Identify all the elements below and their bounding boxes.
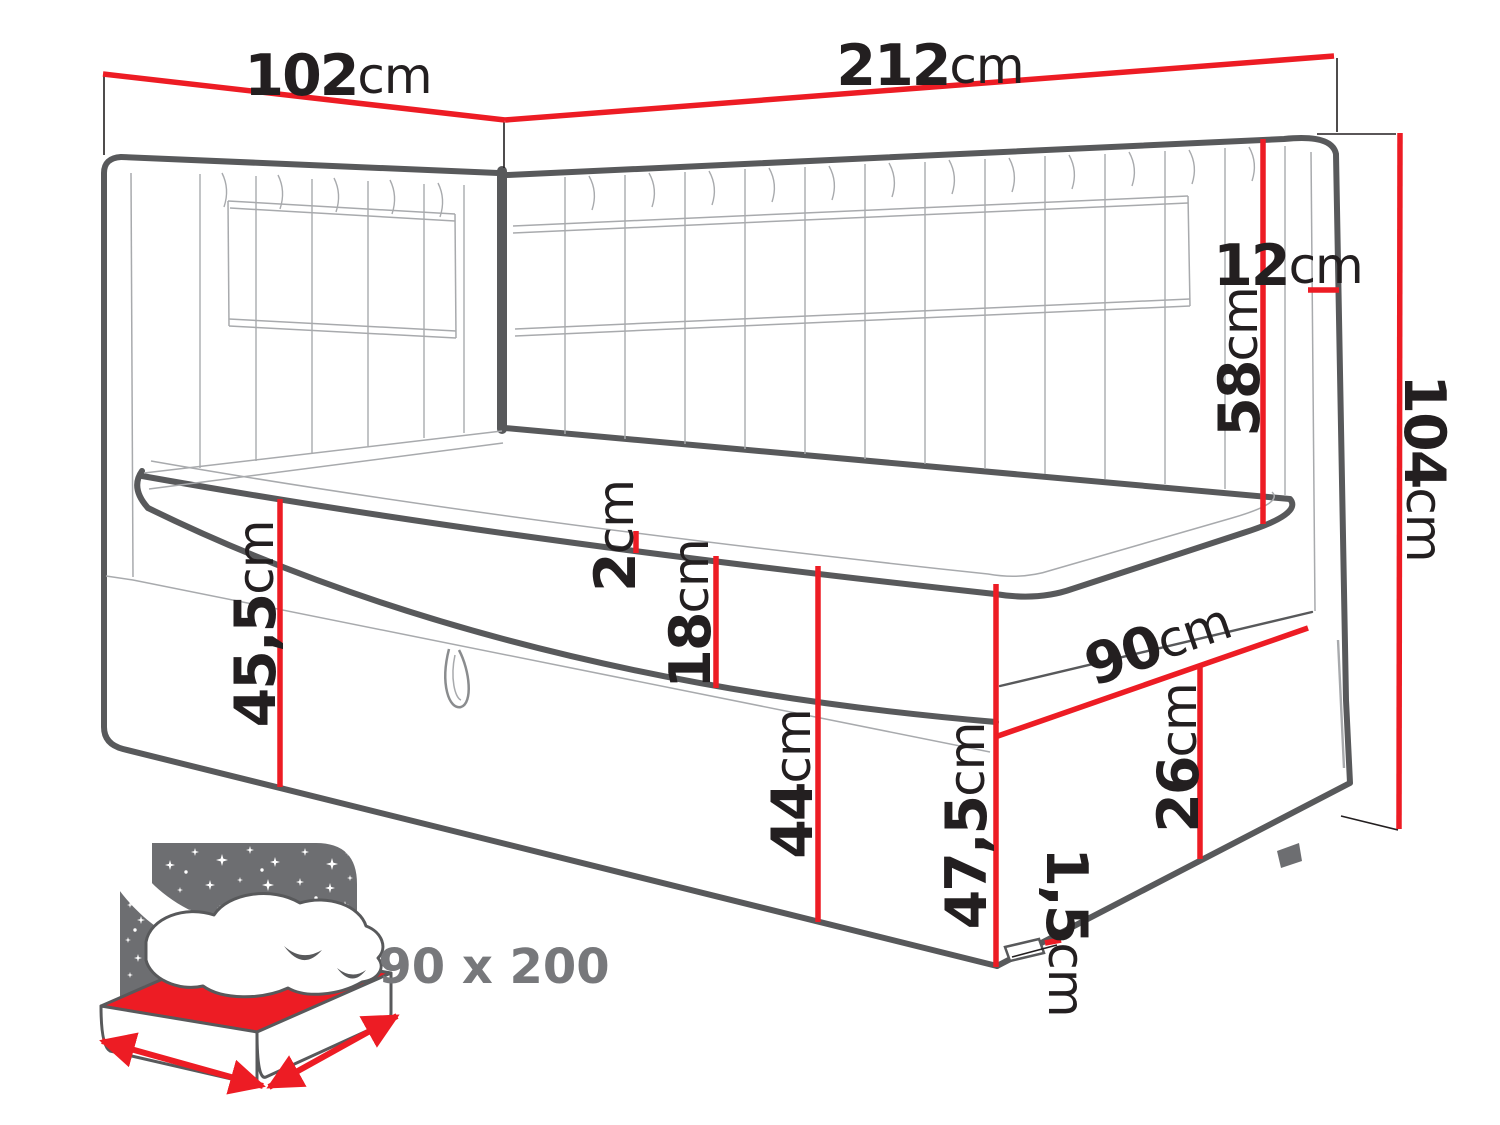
headboard-inner-left-line — [131, 173, 133, 577]
left-panel-line — [230, 208, 455, 221]
dim-total-height-label: 104cm — [1391, 374, 1457, 561]
dim-mattress-height-label: 18cm — [658, 539, 724, 689]
right-band-line — [515, 299, 1190, 329]
dim-foot-height-label: 1,5cm — [1033, 847, 1099, 1016]
bed-outline-drawing — [104, 138, 1350, 966]
diagram-canvas: 102cm 212cm 12cm 58cm 104cm 2cm 18cm 45,… — [0, 0, 1500, 1125]
sleeping-area-label: 90 x 200 — [378, 939, 609, 995]
left-panel-line — [229, 319, 456, 331]
dim-base-height-left-label: 45,5cm — [223, 521, 289, 728]
dim-headboard-above-mattress-label: 58cm — [1207, 287, 1273, 437]
left-headboard-top-edge — [121, 157, 498, 173]
right-band-line — [1188, 196, 1190, 306]
left-panel-line — [228, 201, 455, 214]
headboard-inner-right-line — [1311, 152, 1315, 611]
left-panel-line — [229, 326, 456, 338]
dim-topper-height-label: 2cm — [583, 480, 649, 592]
drawer-handle — [445, 649, 468, 707]
bed-foot-side — [1277, 843, 1302, 868]
dim-corner-height-label: 47,5cm — [934, 723, 1000, 930]
left-panel-line — [228, 201, 229, 326]
sleeping-area-icon: 90 x 200 — [101, 843, 610, 1087]
dim-front-width-label: 212cm — [836, 33, 1023, 99]
dim-side-panel-height-label: 26cm — [1146, 683, 1212, 833]
dim-front-panel-height-label: 44cm — [760, 709, 826, 859]
right-band-line — [513, 196, 1188, 226]
bed-dimension-diagram: 102cm 212cm 12cm 58cm 104cm 2cm 18cm 45,… — [0, 0, 1500, 1125]
right-band-line — [513, 203, 1188, 233]
right-band-line — [515, 306, 1190, 336]
left-panel-line — [455, 214, 456, 338]
dim-side-width-label: 102cm — [244, 43, 431, 109]
